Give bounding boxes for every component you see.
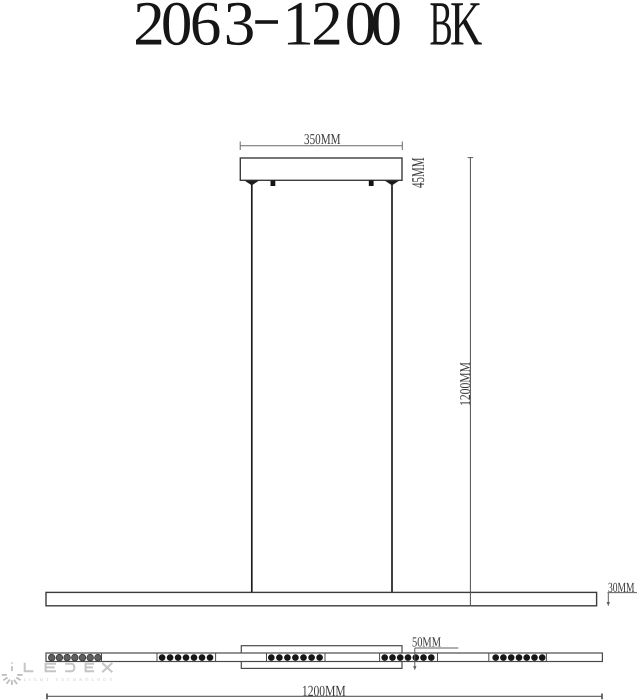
svg-text:B: B <box>430 0 453 59</box>
svg-text:6: 6 <box>190 0 222 59</box>
svg-text:30MM: 30MM <box>608 581 635 596</box>
svg-text:LIGHT TECHNOLOGY: LIGHT TECHNOLOGY <box>24 677 113 682</box>
svg-text:2: 2 <box>311 0 343 59</box>
svg-text:3: 3 <box>224 0 256 59</box>
svg-text:1200MM: 1200MM <box>302 683 346 700</box>
svg-text:0: 0 <box>161 0 193 59</box>
svg-text:K: K <box>450 0 482 59</box>
svg-text:45MM: 45MM <box>408 158 428 189</box>
svg-text:1200MM: 1200MM <box>458 362 474 406</box>
svg-text:350MM: 350MM <box>304 132 341 148</box>
svg-text:1: 1 <box>282 0 314 59</box>
svg-text:0: 0 <box>371 0 403 59</box>
